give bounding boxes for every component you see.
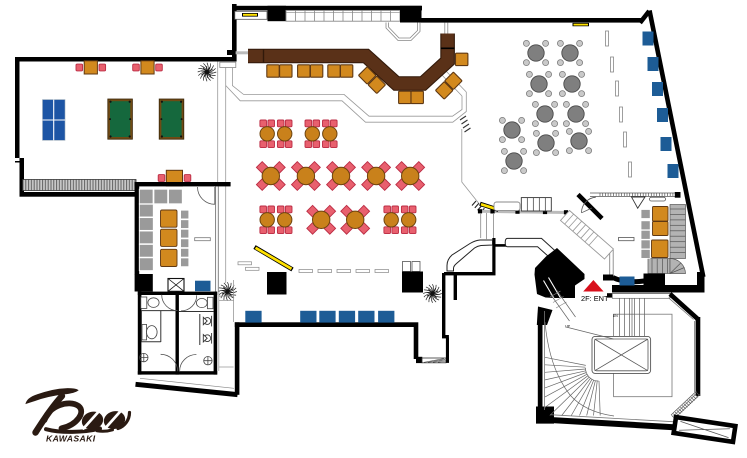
svg-text:DN: DN <box>613 314 618 318</box>
svg-text:2F: ENT: 2F: ENT <box>581 294 609 303</box>
svg-text:KAWASAKI: KAWASAKI <box>46 434 96 444</box>
